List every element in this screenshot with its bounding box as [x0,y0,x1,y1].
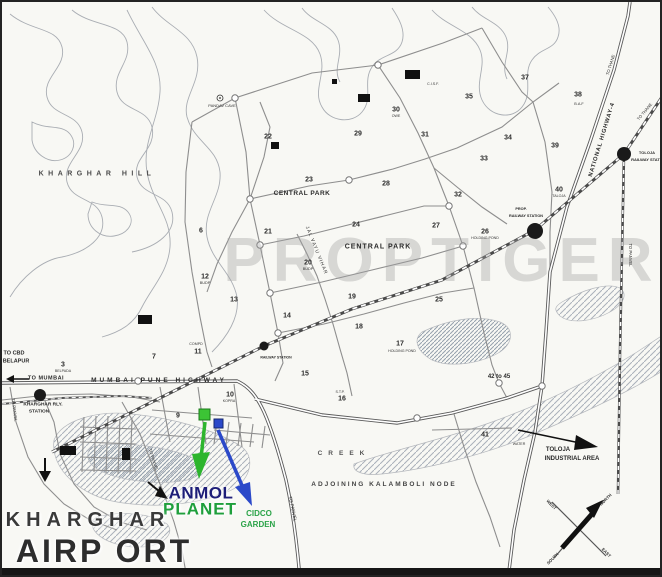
label-water: WATER [513,443,526,447]
label-to-thane-1: TO THANE [606,54,616,75]
sector-11-sublabel: COMPD [189,343,202,347]
labels-layer: PROPTIGERKHARGHAR HILLPANDAV CAVECENTRAL… [2,2,662,577]
label-cidco-garden-2: GARDEN [241,521,276,529]
map-title-kharghar: KHARGHAR [6,510,171,530]
sector-10-sublabel: KOPRA [223,400,236,404]
label-national-highway-4: NATIONAL HIGHWAY-4 [589,102,617,178]
sector-25-label: 25 [435,297,443,304]
sector-31-label: 31 [421,132,429,139]
sector-3-label: 3 [61,362,65,369]
sector-9-label: 9 [176,413,180,420]
sector-40-label: 40 [555,187,563,194]
sector-28-label: 28 [382,181,390,188]
watermark: PROPTIGER [223,230,660,292]
label-to-panvel-left: TO PANVEL [11,398,18,421]
map-frame: PROPTIGERKHARGHAR HILLPANDAV CAVECENTRAL… [0,0,662,577]
sector-17-label: 17 [396,341,404,348]
sector-3-sublabel: BELPADA [55,370,71,374]
sector-41-label: 41 [481,432,489,439]
label-mumbai-pune-highway: MUMBAI PUNE HIGHWAY [91,378,227,385]
sector-18-label: 18 [355,324,363,331]
sector-38-label: 38 [574,92,582,99]
sector-22-label: 22 [264,134,272,141]
brand-planet: PLANET [163,501,237,518]
label-kharghar-rly-2: STATION [29,411,49,416]
label-toloja-industrial-1: TOLOJA [546,447,570,453]
sector-42-45-label: 42 to 45 [488,374,510,380]
label-to-thane-2: TO THANE [637,103,654,122]
label-toloja-rly-1: TOLOJA [639,151,655,155]
sector-30-label: 30 [392,107,400,114]
label-to-cbd: TO CBD [4,351,25,357]
label-prop-rly-1: PROP. [515,208,526,212]
sector-24-label: 24 [352,222,360,229]
label-cisf: C.I.S.F. [427,83,439,87]
sector-23-label: 23 [305,177,313,184]
sector-10-label: 10 [226,392,234,399]
sector-39-label: 39 [551,143,559,150]
label-pandav-cave: PANDAV CAVE [208,104,236,108]
label-to-panvel-mid: TO PANVEL [147,448,158,471]
sector-17-sublabel: HOLDING POND [388,350,416,354]
sector-30-sublabel: OWE [392,115,401,119]
sector-7-label: 7 [152,354,156,361]
compass-south-label: SOUTH [546,552,559,565]
sector-15-label: 15 [301,371,309,378]
sector-16-label: 16 [338,396,346,403]
label-to-panvel-main: TO PANVEL [287,496,297,522]
sector-21-label: 21 [264,229,272,236]
label-cidco-garden-1: CIDCO [246,510,272,518]
sector-37-label: 37 [521,75,529,82]
label-central-park-1: CENTRAL PARK [274,191,331,198]
label-belapur: BELAPUR [3,359,30,365]
sector-32-label: 32 [454,192,462,199]
label-creek: CREEK [318,451,371,458]
label-railway-station-mid: RAILWAY STATION [260,356,291,360]
label-central-park-2: CENTRAL PARK [345,244,412,251]
label-toloja-industrial-2: INDUSTRIAL AREA [545,456,600,462]
compass-east-label: EAST [601,548,612,559]
label-prop-rly-2: RAILWAY STATION [509,215,543,219]
sector-33-label: 33 [480,156,488,163]
compass-north-label: NORTH [599,493,613,507]
sector-29-label: 29 [354,131,362,138]
map-title-airport: AIRP ORT [16,535,192,567]
sector-38-sublabel: B.A.F [574,103,584,107]
sector-27-label: 27 [432,223,440,230]
sector-11-label: 11 [194,349,201,356]
label-to-mumbai: TO MUMBAI [28,376,64,382]
sector-19-label: 19 [348,294,356,301]
label-to-panvel-rail: TO PANVEL [628,243,632,266]
sector-40-sublabel: TALOJA [552,195,565,199]
sector-20-sublabel: BUDP [303,268,314,272]
sector-13-label: 13 [230,297,238,304]
sector-26-sublabel: HOLDING POND [471,237,499,241]
sector-34-label: 34 [504,135,512,142]
sector-12-label: 12 [201,274,209,281]
label-kharghar-rly-1: KHARGHAR RLY. [23,404,62,409]
sector-6-label: 6 [199,228,203,235]
sector-20-label: 20 [304,260,312,267]
sector-12-sublabel: BUDP [200,282,211,286]
sector-16-sublabel: S.T.P. [335,391,344,395]
label-kharghar-hill: KHARGHAR HILL [39,171,156,178]
label-toloja-rly-2: RAILWAY STATION [631,158,662,162]
sector-26-label: 26 [481,229,489,236]
sector-35-label: 35 [465,94,473,101]
label-adjoining-kalamboli: ADJOINING KALAMBOLI NODE [311,482,457,489]
sector-14-label: 14 [283,313,291,320]
compass-west-label: WEST [545,499,557,511]
